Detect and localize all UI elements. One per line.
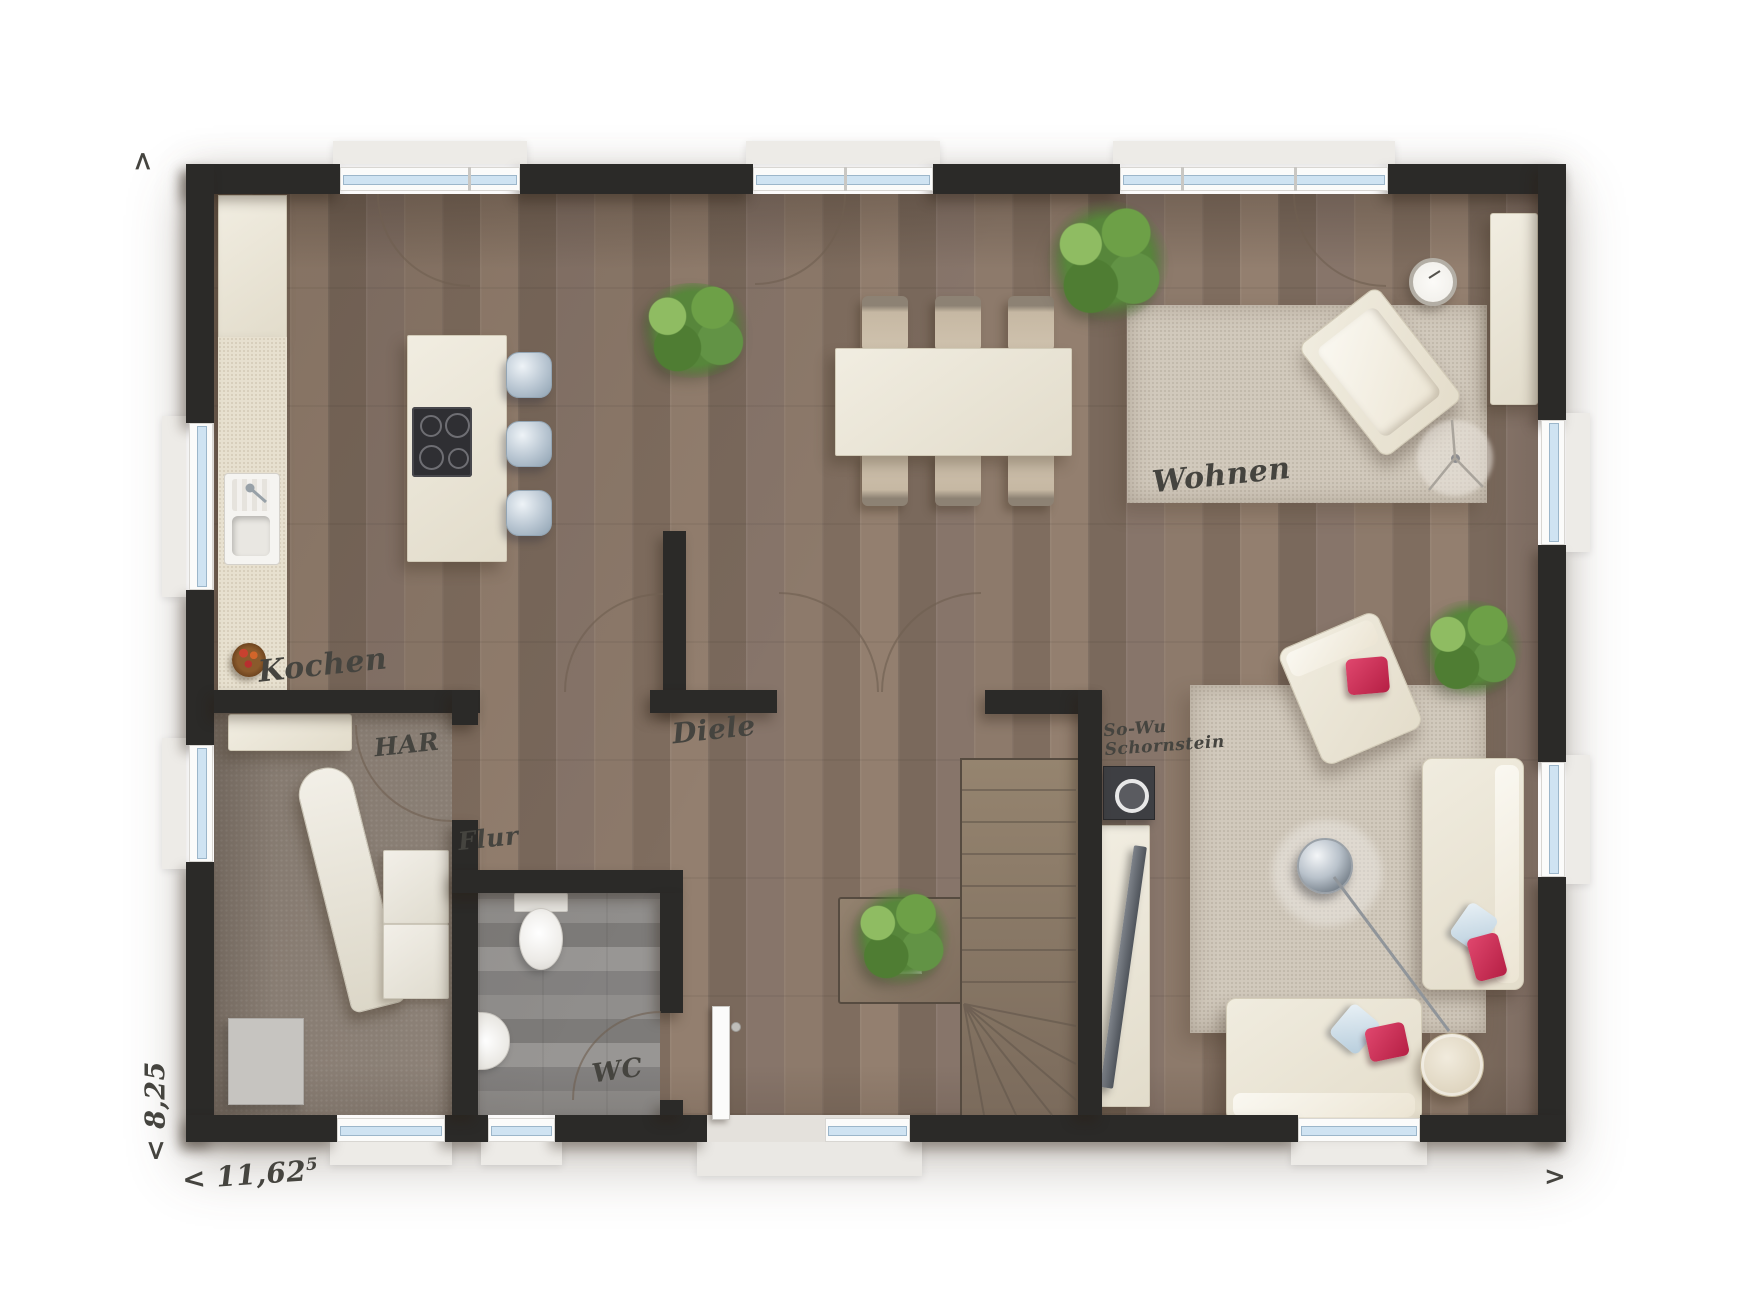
clock-hand (1429, 271, 1440, 278)
faucet-spout (250, 488, 266, 502)
arc-lamp-arm (1334, 877, 1449, 1031)
dimension-width-sup: 5 (305, 1153, 319, 1174)
door-swing-arc (565, 594, 663, 692)
door-swing-arc (378, 194, 470, 286)
door-swing-arc (779, 593, 878, 692)
stair-winders (964, 1004, 1076, 1115)
door-swing-arc (882, 593, 981, 692)
dimension-depth: < 8,25 (141, 1052, 172, 1172)
dimension-arrow-up: > (132, 146, 154, 176)
tripod-lamp-legs (1429, 420, 1483, 490)
dimension-arrow-right: > (1544, 1162, 1566, 1192)
door-swing-arc (1294, 194, 1386, 286)
stair-treads (962, 790, 1076, 982)
floor-plan: Kochen Wohnen HAR Diele Flur WC So-Wu Sc… (0, 0, 1754, 1314)
door-swing-arc (755, 194, 845, 284)
